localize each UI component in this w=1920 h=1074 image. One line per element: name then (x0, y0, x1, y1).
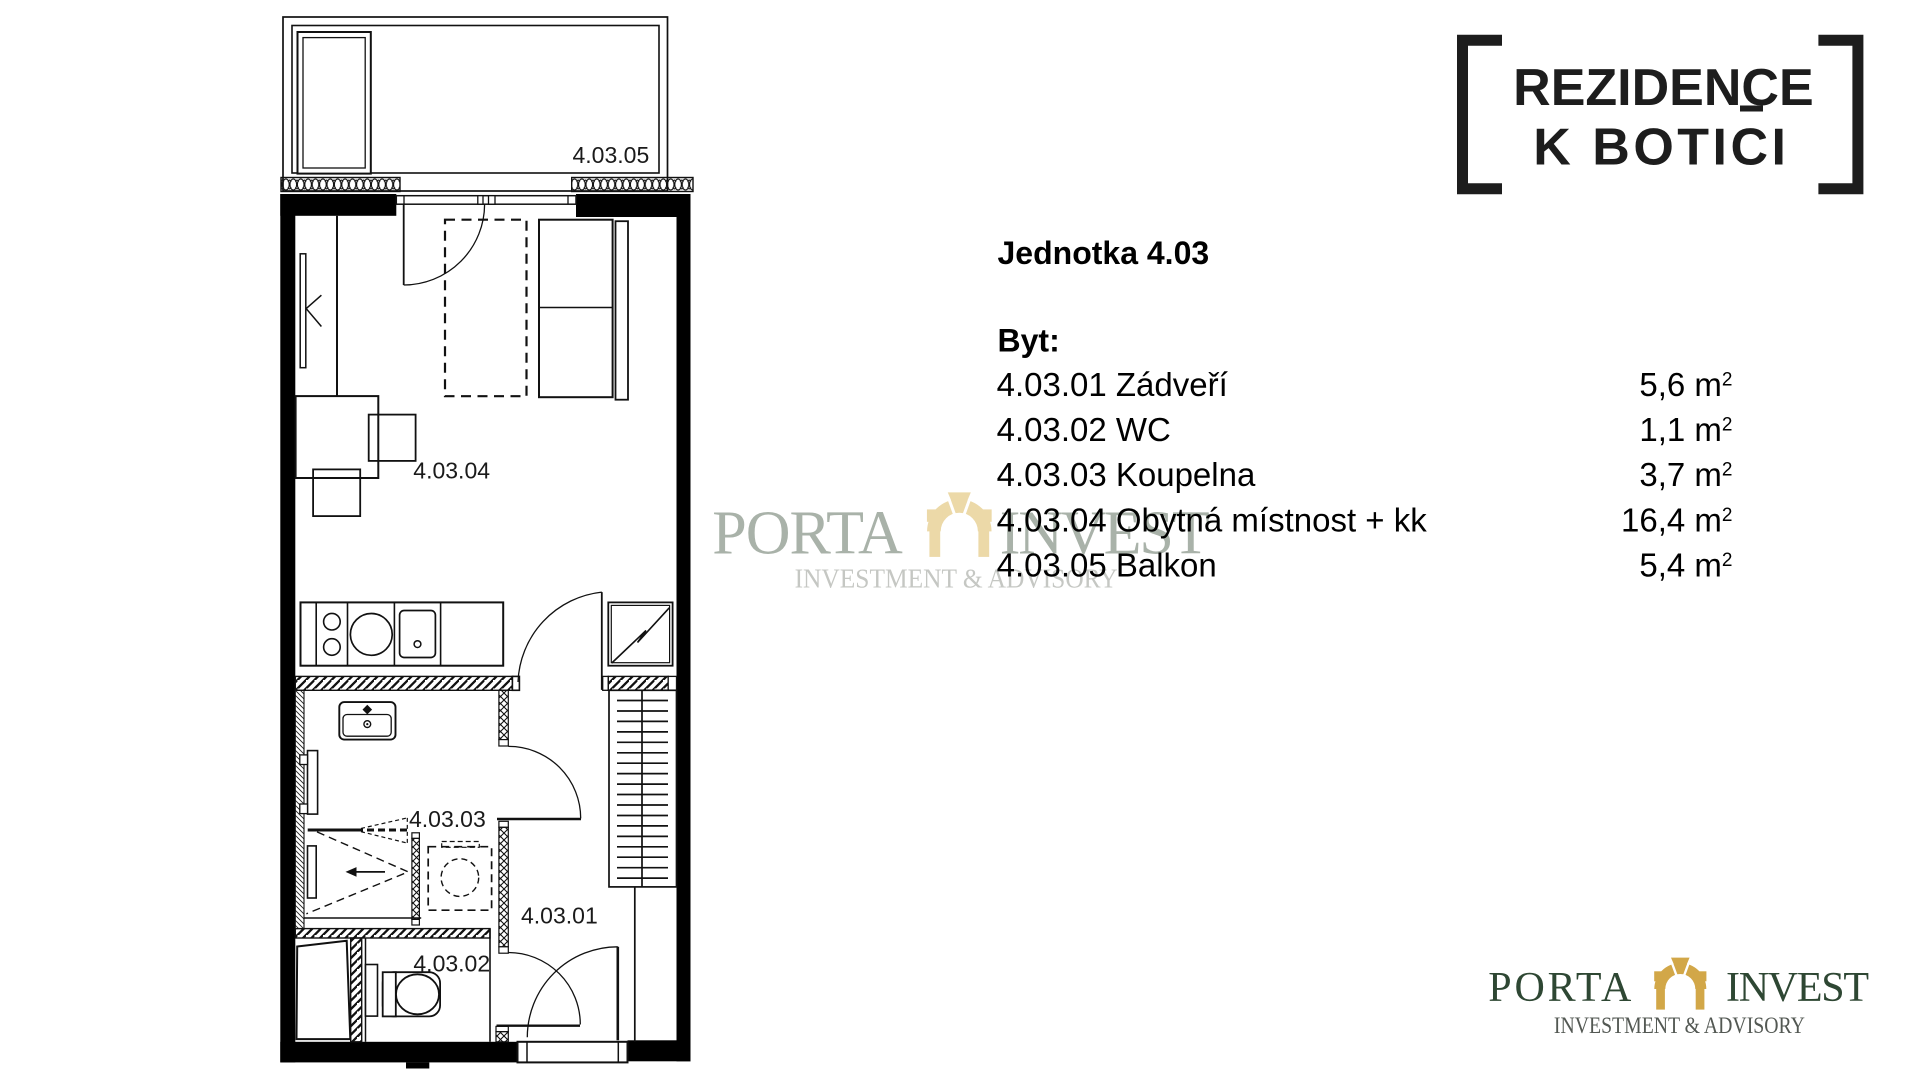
svg-text:INVESTMENT & ADVISORY: INVESTMENT & ADVISORY (1554, 1013, 1805, 1038)
svg-text:4.03.02: 4.03.02 (413, 951, 490, 977)
svg-text:4.03.01 Zádveří: 4.03.01 Zádveří (997, 366, 1228, 403)
svg-text:3,7 m2: 3,7 m2 (1639, 456, 1732, 493)
svg-text:INVEST: INVEST (1726, 965, 1869, 1011)
svg-text:4.03.05: 4.03.05 (573, 142, 650, 168)
svg-text:PORTA: PORTA (712, 500, 903, 568)
svg-text:5,6 m2: 5,6 m2 (1639, 366, 1732, 403)
svg-text:4.03.01: 4.03.01 (521, 903, 598, 929)
svg-text:K BOTICI: K BOTICI (1533, 118, 1789, 176)
svg-text:5,4 m2: 5,4 m2 (1639, 547, 1732, 584)
svg-text:4.03.04 Obytná místnost + kk: 4.03.04 Obytná místnost + kk (997, 501, 1428, 538)
svg-text:Byt:: Byt: (998, 323, 1060, 359)
svg-text:4.03.03: 4.03.03 (409, 806, 486, 832)
svg-text:REZIDENCE: REZIDENCE (1513, 59, 1813, 117)
svg-text:4.03.04: 4.03.04 (413, 457, 490, 483)
svg-text:4.03.02 WC: 4.03.02 WC (997, 411, 1171, 448)
svg-text:PORTA: PORTA (1488, 965, 1632, 1011)
svg-text:4.03.05 Balkon: 4.03.05 Balkon (997, 547, 1217, 584)
svg-text:4.03.03 Koupelna: 4.03.03 Koupelna (997, 456, 1256, 493)
svg-text:16,4 m2: 16,4 m2 (1621, 501, 1732, 538)
svg-text:Jednotka 4.03: Jednotka 4.03 (998, 235, 1210, 271)
svg-text:1,1 m2: 1,1 m2 (1639, 411, 1732, 448)
